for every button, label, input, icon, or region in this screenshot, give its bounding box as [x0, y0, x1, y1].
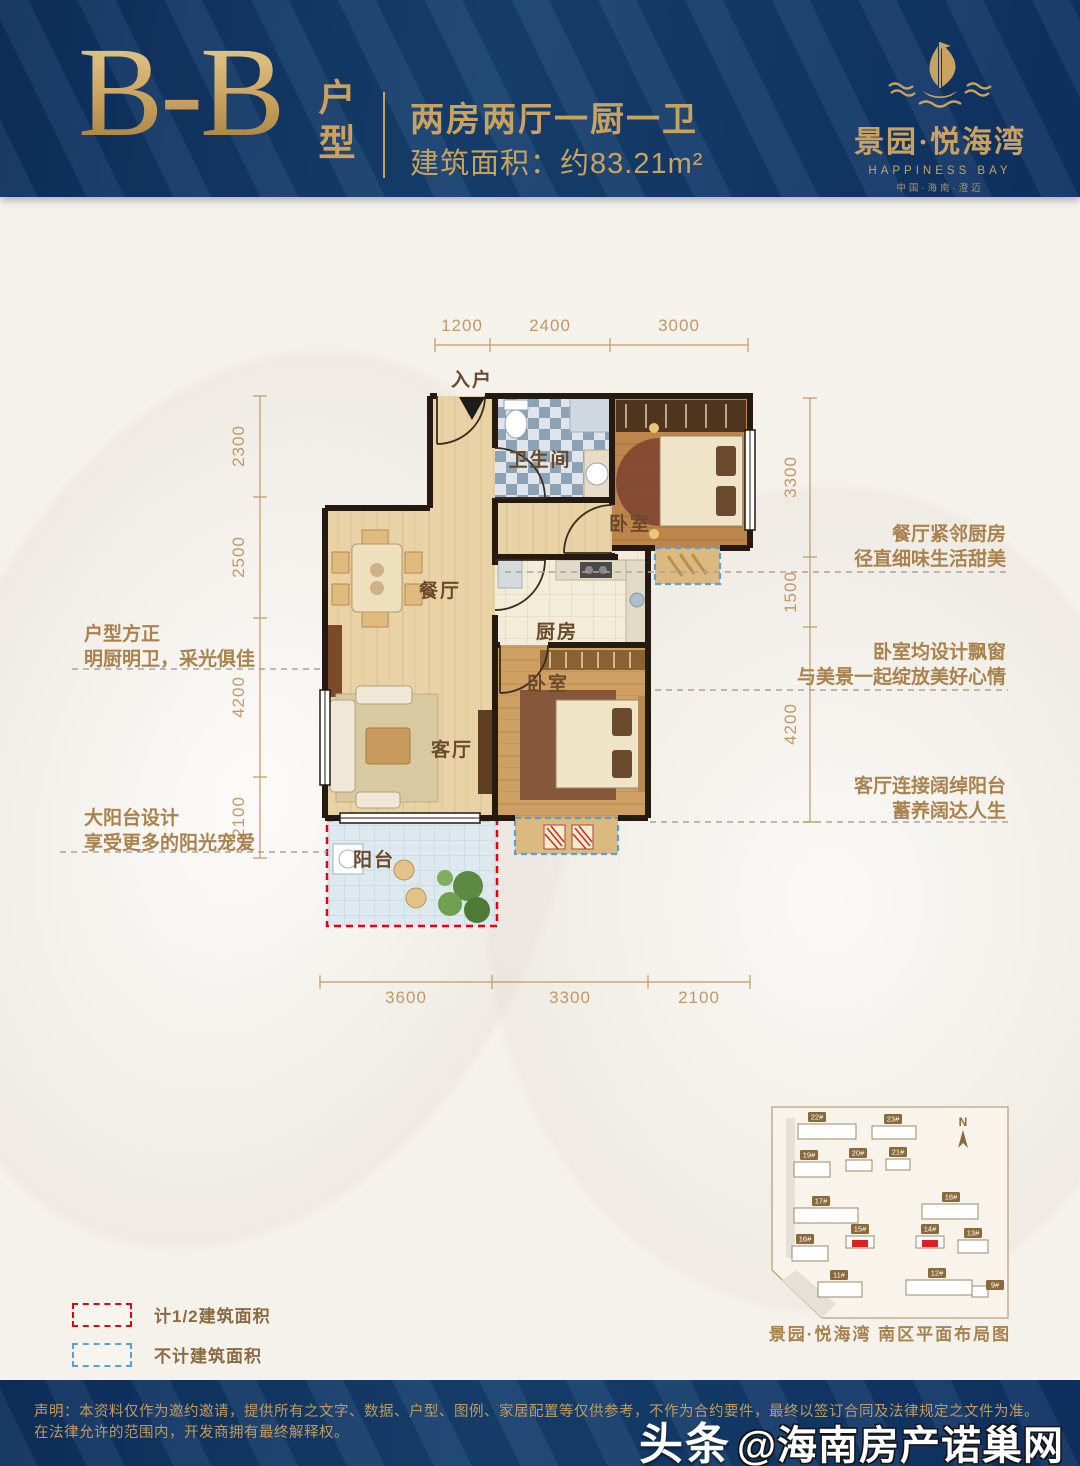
toilet: [505, 410, 527, 438]
shower: [570, 398, 610, 432]
dim-top-0: 1200: [441, 316, 483, 335]
dim-right-1: 1500: [781, 571, 800, 613]
svg-text:11#: 11#: [833, 1271, 846, 1280]
bay-window-bedroom2: [515, 818, 618, 854]
svg-text:12#: 12#: [931, 1269, 944, 1278]
legend-not-counted: 不计建筑面积: [72, 1342, 262, 1367]
kitchen-label: 厨房: [536, 620, 578, 643]
balcony-zone: [327, 820, 497, 926]
bathroom-label: 卫生间: [508, 448, 571, 471]
svg-text:9#: 9#: [991, 1281, 1000, 1290]
dim-top-1: 2400: [529, 316, 571, 335]
floor-plan-canvas: 入户 1200 2400 3000 2300 2500 4200 2100 33…: [0, 0, 1080, 1466]
dim-right-2: 4200: [781, 703, 800, 745]
dim-bottom-0: 3600: [385, 988, 427, 1007]
dim-bottom-2: 2100: [678, 988, 720, 1007]
watermark-account: @海南房产诺巢网: [737, 1413, 1064, 1466]
living-label: 客厅: [431, 738, 473, 761]
svg-text:14#: 14#: [924, 1225, 937, 1234]
dim-left-2: 4200: [229, 676, 248, 718]
annotation-left-2: 大阳台设计 享受更多的阳光宠爱: [84, 806, 255, 856]
svg-text:23#: 23#: [887, 1115, 900, 1124]
washbasin: [586, 463, 608, 485]
highlighted-unit: [852, 1240, 868, 1247]
brochure-page: B-B 户型 两房两厅一厨一卫 建筑面积：约83.21m²: [0, 0, 1080, 1466]
svg-text:15#: 15#: [854, 1225, 867, 1234]
living-set: [330, 686, 438, 808]
svg-text:19#: 19#: [803, 1151, 816, 1160]
annotation-left-1: 户型方正 明厨明卫，采光俱佳: [84, 622, 255, 672]
legend-red-dashed-swatch: [72, 1303, 132, 1327]
svg-text:22#: 22#: [811, 1113, 824, 1122]
site-plan: 22# 23# 19# 20# 21# 17# 18# 16# 15# 14# …: [769, 1107, 1011, 1344]
svg-text:20#: 20#: [852, 1149, 865, 1158]
svg-text:17#: 17#: [815, 1197, 828, 1206]
dining-label: 餐厅: [419, 579, 461, 602]
tv-cabinet: [478, 710, 494, 794]
stool: [406, 888, 426, 908]
dim-right-0: 3300: [781, 456, 800, 498]
entry-label: 入户: [451, 368, 493, 391]
legend-blue-dashed-swatch: [72, 1343, 132, 1367]
bedroom2-label: 卧室: [527, 672, 569, 695]
svg-text:21#: 21#: [892, 1148, 905, 1157]
svg-text:N: N: [959, 1115, 968, 1129]
dim-left-0: 2300: [229, 425, 248, 467]
bedroom1-label: 卧室: [609, 512, 651, 535]
dim-top-2: 3000: [658, 316, 700, 335]
svg-text:18#: 18#: [945, 1193, 958, 1202]
site-plan-caption: 景园·悦海湾 南区平面布局图: [769, 1324, 1011, 1344]
svg-text:13#: 13#: [967, 1229, 980, 1238]
watermark-brand: 头条: [639, 1408, 731, 1466]
balcony-label: 阳台: [353, 848, 395, 871]
annotation-right-2: 卧室均设计飘窗 与美景一起绽放美好心情: [686, 640, 1006, 690]
headboard: [638, 696, 646, 792]
annotation-right-1: 餐厅紧邻厨房 径直细味生活甜美: [706, 522, 1006, 572]
sideboard: [327, 625, 342, 697]
fridge: [498, 560, 522, 588]
legend-half-area: 计1/2建筑面积: [72, 1302, 271, 1327]
annotation-right-3: 客厅连接阔绰阳台 蓄养阔达人生: [706, 774, 1006, 824]
watermark: 头条 @海南房产诺巢网: [639, 1408, 1064, 1466]
dim-bottom-1: 3300: [549, 988, 591, 1007]
stool: [394, 860, 414, 880]
dim-left-1: 2500: [229, 536, 248, 578]
highlighted-unit: [922, 1240, 938, 1247]
svg-text:16#: 16#: [799, 1235, 812, 1244]
